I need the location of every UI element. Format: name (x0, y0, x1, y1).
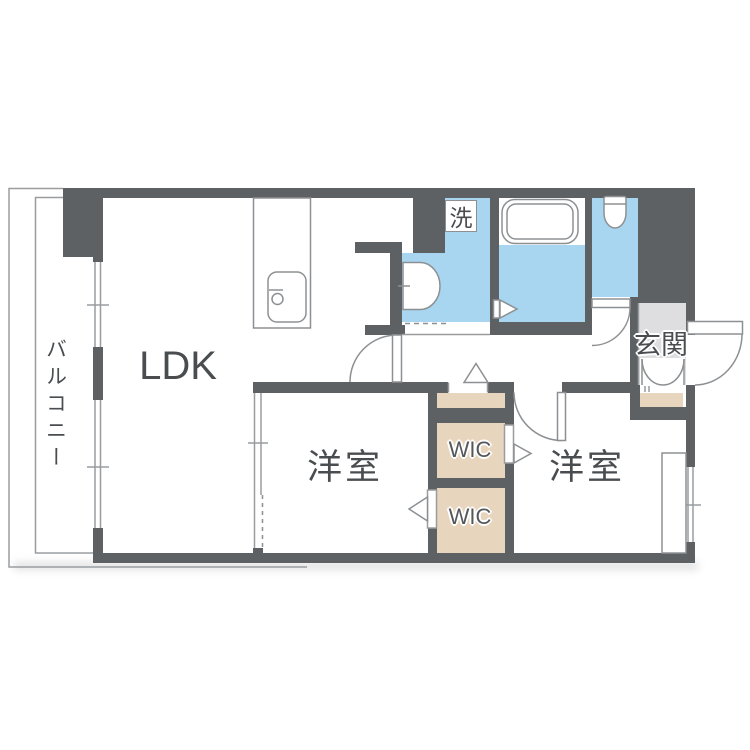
entrance-step-ticks (645, 386, 649, 392)
label-laundry: 洗 (450, 199, 473, 233)
entrance-closet (640, 358, 685, 385)
bathtub (502, 200, 578, 244)
label-ldk: LDK (113, 342, 243, 390)
door-leaf-ldk (393, 335, 402, 382)
door-leaf-toilet (592, 299, 630, 308)
door-arc-entrance (695, 334, 742, 385)
window-counter-bedroom-right (662, 453, 686, 553)
kitchen-faucet-knob (272, 294, 283, 305)
entry-triangle-hall-closet (464, 364, 488, 383)
label-bedroom-right: 洋室 (517, 446, 657, 488)
door-arc-bedroom-right (514, 393, 562, 441)
door-leaf-bedroom-right (558, 393, 566, 441)
door-leaf-bath (494, 300, 500, 318)
entry-triangle-bath (500, 300, 517, 318)
label-wic-top: WIC (433, 437, 507, 463)
kitchen-counter (254, 198, 311, 328)
toilet-bowl (604, 204, 626, 228)
label-balcony: バルコニー (32, 318, 78, 493)
label-bedroom-left: 洋室 (275, 446, 415, 488)
label-entrance: 玄関 (622, 330, 700, 360)
entry-triangle-wic-bottom (409, 497, 428, 521)
window-frame (95, 262, 101, 528)
laundry-machine: 洗 (445, 200, 477, 232)
closet-opening-edge (449, 383, 488, 393)
label-wic-bottom: WIC (433, 504, 507, 530)
sliding-partition (255, 393, 262, 548)
window-tick (87, 305, 109, 467)
kitchen-sink (268, 272, 306, 322)
floor-plan: バルコニー LDK 洋室 洋室 WIC WIC 玄関 洗 (0, 0, 750, 750)
door-arc-ldk (350, 335, 397, 382)
